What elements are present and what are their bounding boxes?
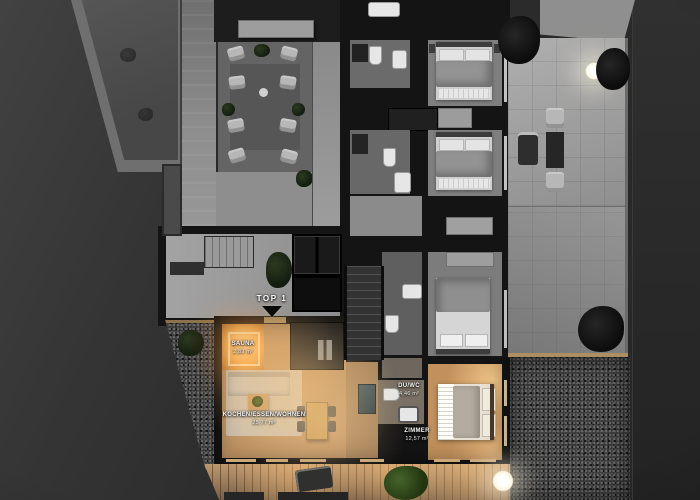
entry-hall — [382, 358, 422, 378]
toilet — [369, 46, 382, 65]
entry-door-gap — [264, 317, 286, 323]
window-sill — [434, 459, 460, 462]
room-name: KOCHEN/ESSEN/WOHNEN — [223, 412, 306, 418]
outdoor-lounger — [518, 132, 538, 165]
plant — [252, 396, 263, 407]
armchair — [227, 118, 245, 134]
bed — [436, 132, 492, 190]
sink — [392, 50, 407, 69]
room-name: ZIMMER — [404, 428, 429, 434]
unit-arrow-icon — [262, 306, 282, 317]
terrace-plant — [138, 108, 153, 121]
nightstand — [429, 44, 435, 53]
tree — [596, 48, 630, 90]
window — [504, 136, 507, 190]
sink — [398, 406, 419, 423]
bed — [436, 42, 492, 100]
window-sill — [300, 459, 326, 462]
armchair — [279, 75, 297, 90]
bathtub — [368, 2, 400, 17]
window-sill — [226, 459, 256, 462]
unit-label: TOP 1 — [257, 294, 288, 304]
staircase — [204, 236, 254, 268]
gravel-courtyard — [508, 357, 630, 500]
deck-lamp — [492, 470, 514, 492]
room-area: 2,89 m² — [232, 349, 255, 356]
bench — [170, 262, 204, 275]
tree — [498, 16, 540, 64]
armchair — [228, 75, 245, 90]
stairwell-down — [344, 266, 384, 360]
deck-furniture — [224, 492, 264, 500]
dining-chair — [328, 406, 336, 417]
corridor — [312, 42, 341, 232]
bathroom-3 — [382, 252, 422, 355]
sofa — [228, 372, 290, 396]
label-living: KOCHEN/ESSEN/WOHNEN 25,77 m² — [223, 412, 306, 426]
kitchen-counter — [290, 322, 344, 370]
wall-stub — [162, 164, 182, 236]
elevator — [292, 234, 342, 276]
window — [504, 416, 507, 446]
cabinet — [446, 217, 493, 235]
kitchen-sink — [318, 340, 332, 360]
room-area: 12,57 m² — [404, 436, 429, 443]
window — [504, 290, 507, 348]
bath-cabinet — [352, 134, 368, 154]
window-sill — [470, 459, 496, 462]
background-right-band — [632, 0, 700, 500]
deck-furniture — [278, 492, 348, 500]
room-name: SAUNA — [232, 341, 255, 347]
wardrobe-light — [438, 108, 472, 128]
window-sill — [360, 459, 384, 462]
upper-terrace-wedge — [540, 0, 635, 42]
sink — [394, 172, 411, 193]
window-sill — [266, 459, 288, 462]
wardrobe-dark — [388, 108, 438, 131]
shower — [358, 384, 376, 414]
long-table — [238, 20, 314, 38]
armchair — [279, 118, 297, 134]
room-area: 25,77 m² — [223, 420, 306, 427]
hall-mid — [350, 196, 422, 236]
outdoor-table — [546, 132, 564, 168]
hall-plant — [296, 170, 313, 187]
outdoor-chair — [546, 172, 564, 192]
label-sauna: SAUNA 2,89 m² — [232, 341, 255, 355]
cabinet — [446, 252, 494, 267]
floorplan-rendering: TOP 1 SAUNA 2,89 m² KOCHEN/ESSEN/WOHNEN … — [0, 0, 700, 500]
sink — [402, 284, 422, 299]
terrace-plant — [120, 48, 136, 62]
outdoor-chair — [546, 108, 564, 128]
window — [504, 380, 507, 406]
bush — [578, 306, 624, 352]
toilet — [383, 148, 396, 167]
terrace-railing — [625, 38, 628, 358]
dining-table — [306, 402, 328, 440]
walkway — [180, 0, 218, 232]
bed — [438, 384, 494, 440]
toilet — [385, 315, 399, 333]
room-name: DU/WC — [398, 383, 420, 389]
label-duwc: DU/WC 4,46 m² — [398, 383, 420, 397]
room-area: 4,46 m² — [398, 391, 420, 398]
bath-cabinet — [352, 44, 368, 62]
side-table — [259, 88, 268, 97]
label-zimmer: ZIMMER 12,57 m² — [404, 428, 429, 442]
dining-chair — [328, 421, 336, 432]
elevator-shaft — [292, 276, 342, 312]
bed — [436, 278, 490, 354]
